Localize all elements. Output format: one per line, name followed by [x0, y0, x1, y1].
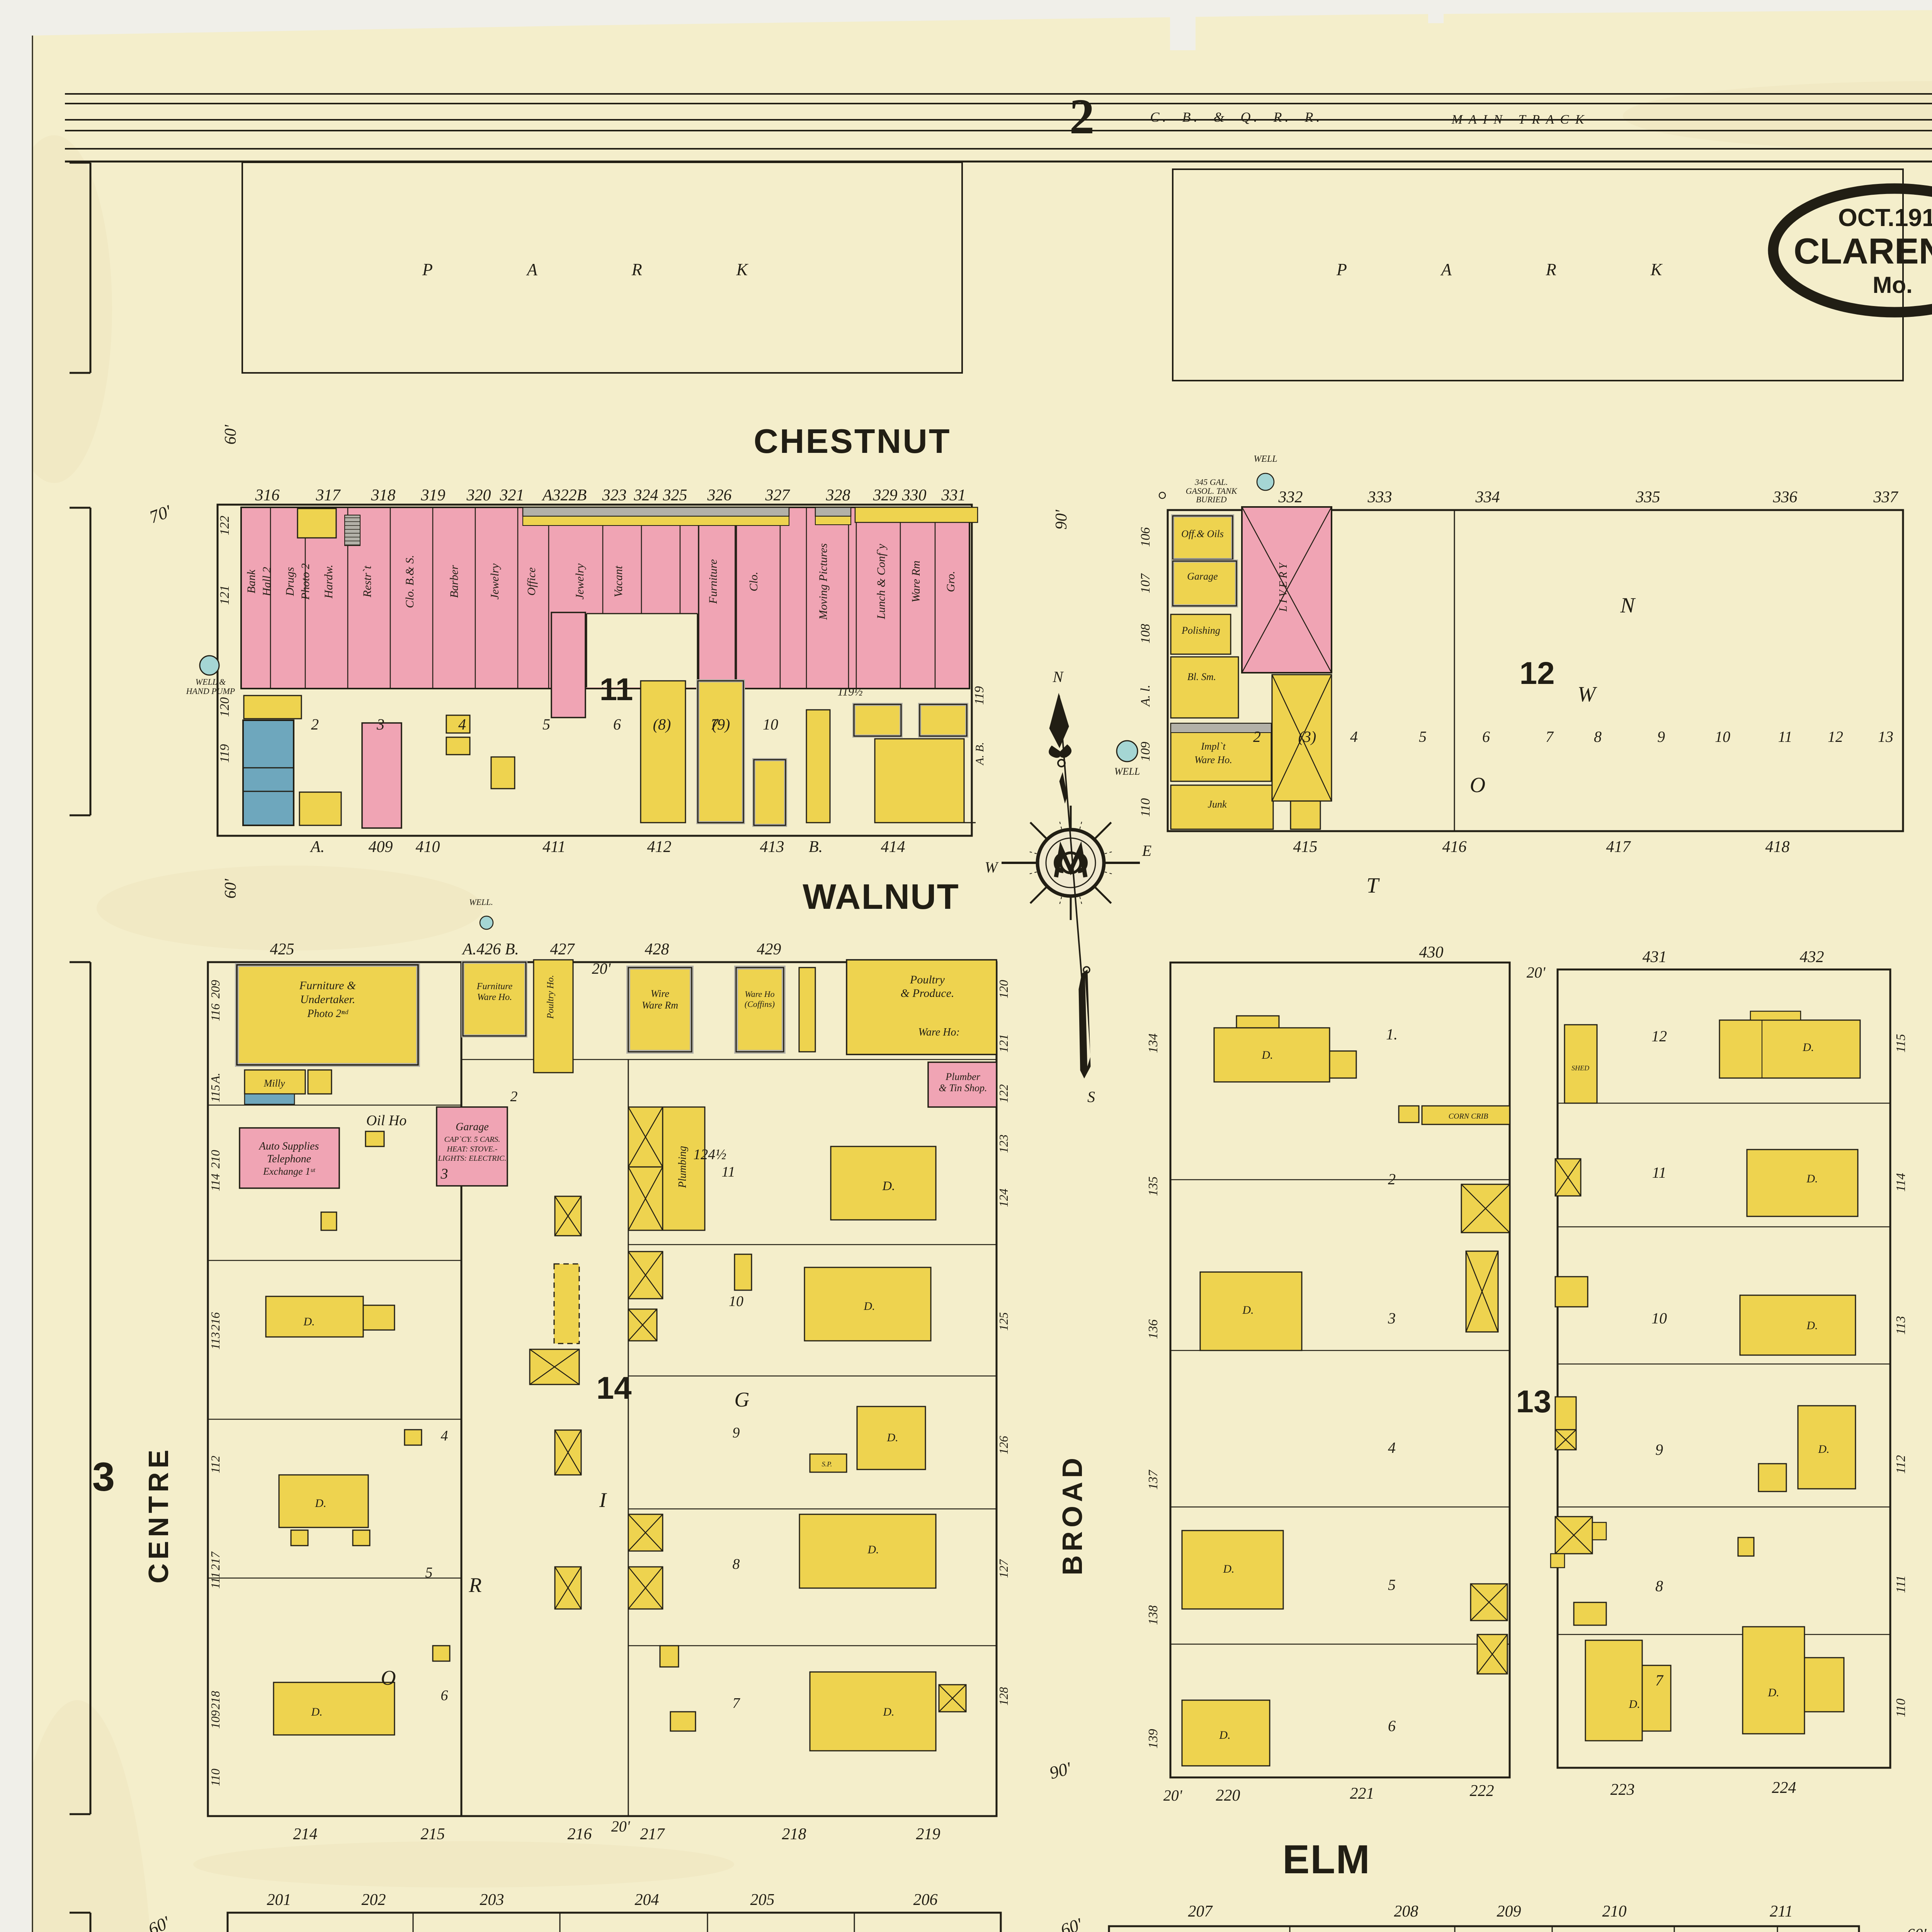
svg-text:A.426 B.: A.426 B. [461, 940, 519, 958]
svg-text:WALNUT: WALNUT [803, 877, 959, 917]
svg-text:335: 335 [1636, 488, 1660, 506]
svg-text:111: 111 [1894, 1575, 1908, 1593]
svg-text:W: W [985, 859, 999, 876]
svg-text:90': 90' [1053, 509, 1070, 529]
svg-text:203: 203 [480, 1891, 504, 1909]
svg-text:316: 316 [255, 486, 280, 504]
svg-text:211: 211 [1770, 1903, 1793, 1920]
svg-text:20': 20' [1163, 1787, 1183, 1804]
svg-text:Bank: Bank [245, 569, 258, 593]
svg-text:2: 2 [1253, 728, 1261, 745]
svg-text:Auto Supplies: Auto Supplies [259, 1140, 319, 1152]
svg-text:217: 217 [208, 1551, 222, 1570]
svg-text:CAP`CY. 5 CARS.: CAP`CY. 5 CARS. [444, 1135, 500, 1144]
svg-text:O: O [1470, 773, 1485, 797]
svg-text:333: 333 [1367, 488, 1392, 506]
svg-text:S: S [1087, 1088, 1095, 1105]
svg-text:D.: D. [882, 1179, 895, 1193]
svg-text:D.: D. [1242, 1304, 1253, 1316]
svg-text:A. B.: A. B. [973, 742, 986, 765]
svg-text:A322B: A322B [541, 486, 587, 504]
svg-text:Furniture &: Furniture & [299, 979, 356, 992]
svg-text:345 GAL.: 345 GAL. [1194, 477, 1228, 487]
svg-text:106: 106 [1138, 527, 1153, 547]
svg-text:209: 209 [208, 980, 222, 998]
svg-text:20': 20' [611, 1818, 631, 1835]
svg-text:8: 8 [733, 1556, 740, 1572]
svg-text:1.: 1. [1386, 1026, 1398, 1043]
svg-text:Vacant: Vacant [612, 566, 625, 597]
svg-text:427: 427 [550, 940, 575, 958]
svg-text:L I V E R Y: L I V E R Y [1277, 562, 1289, 612]
svg-text:215: 215 [421, 1825, 445, 1843]
svg-text:323: 323 [602, 486, 627, 504]
svg-text:LIGHTS: ELECTRIC.: LIGHTS: ELECTRIC. [438, 1154, 507, 1163]
svg-text:11: 11 [1652, 1164, 1666, 1181]
svg-text:6: 6 [1482, 728, 1490, 745]
svg-text:122: 122 [218, 516, 232, 536]
svg-text:114: 114 [208, 1173, 222, 1191]
svg-text:WELL: WELL [1114, 766, 1140, 777]
svg-text:410: 410 [416, 838, 440, 856]
svg-text:412: 412 [647, 838, 672, 856]
svg-text:SHED: SHED [1571, 1064, 1589, 1072]
svg-text:5: 5 [1388, 1576, 1396, 1594]
svg-text:8: 8 [1594, 728, 1602, 745]
svg-text:Ware Ho.: Ware Ho. [477, 992, 512, 1002]
svg-text:3: 3 [440, 1166, 448, 1182]
svg-text:324: 324 [634, 486, 658, 504]
svg-text:Junk: Junk [1207, 799, 1227, 810]
svg-text:113: 113 [1894, 1316, 1908, 1335]
svg-text:Milly: Milly [264, 1078, 285, 1089]
svg-text:7: 7 [1546, 728, 1554, 745]
svg-text:WELL &: WELL & [196, 677, 226, 687]
svg-text:Exchange 1ᵘᵗ: Exchange 1ᵘᵗ [263, 1166, 316, 1177]
svg-text:Poultry: Poultry [910, 973, 945, 986]
svg-text:326: 326 [707, 486, 732, 504]
svg-text:415: 415 [1293, 838, 1318, 856]
svg-text:2: 2 [1070, 89, 1095, 145]
svg-text:Barber: Barber [448, 565, 461, 598]
svg-text:319: 319 [421, 486, 446, 504]
svg-text:M A I N T R A C K: M A I N T R A C K [1451, 112, 1586, 127]
svg-text:219: 219 [916, 1825, 940, 1843]
svg-text:Hardw.: Hardw. [322, 565, 335, 599]
svg-text:425: 425 [270, 940, 294, 958]
svg-text:110: 110 [1894, 1699, 1908, 1717]
svg-text:Clo.: Clo. [747, 572, 760, 592]
svg-text:B.: B. [809, 838, 823, 856]
svg-text:14: 14 [596, 1371, 632, 1406]
svg-text:336: 336 [1773, 488, 1798, 506]
svg-text:8: 8 [1655, 1577, 1663, 1595]
svg-text:OCT.1916.: OCT.1916. [1838, 204, 1932, 231]
svg-text:P A R K: P A R K [422, 260, 763, 279]
svg-text:214: 214 [293, 1825, 318, 1843]
svg-text:10: 10 [729, 1293, 743, 1310]
svg-text:321: 321 [500, 486, 524, 504]
svg-text:224: 224 [1772, 1779, 1796, 1797]
svg-text:HAND PUMP: HAND PUMP [186, 686, 235, 696]
svg-text:20': 20' [1527, 964, 1546, 981]
svg-text:138: 138 [1146, 1605, 1160, 1625]
svg-text:60': 60' [222, 424, 240, 444]
svg-text:Office: Office [525, 567, 538, 595]
svg-text:D.: D. [303, 1315, 315, 1328]
svg-text:430: 430 [1419, 944, 1444, 961]
svg-text:417: 417 [1606, 838, 1631, 856]
svg-text:6: 6 [613, 716, 621, 733]
svg-text:109: 109 [208, 1710, 222, 1729]
svg-text:201: 201 [267, 1891, 291, 1909]
svg-text:328: 328 [826, 486, 850, 504]
svg-text:109: 109 [1138, 742, 1153, 762]
svg-text:4: 4 [458, 716, 466, 733]
svg-text:D.: D. [883, 1706, 894, 1718]
svg-text:208: 208 [1394, 1903, 1418, 1920]
svg-text:Ware Ho:: Ware Ho: [918, 1026, 960, 1038]
svg-text:Telephone: Telephone [267, 1153, 311, 1165]
svg-text:Gro.: Gro. [944, 571, 957, 592]
svg-text:Plumbing: Plumbing [677, 1146, 689, 1189]
svg-text:D.: D. [1806, 1172, 1818, 1185]
svg-text:ELM: ELM [1282, 1837, 1371, 1882]
svg-text:119: 119 [972, 686, 986, 705]
svg-text:C. B. & Q. R. R.: C. B. & Q. R. R. [1150, 109, 1323, 125]
svg-text:5: 5 [543, 716, 550, 733]
svg-text:139: 139 [1146, 1729, 1160, 1749]
svg-text:Impl`t: Impl`t [1201, 741, 1226, 752]
svg-text:218: 218 [782, 1825, 806, 1843]
svg-text:121: 121 [997, 1034, 1010, 1053]
svg-text:128: 128 [997, 1687, 1010, 1706]
svg-text:HEAT: STOVE.-: HEAT: STOVE.- [446, 1145, 497, 1153]
svg-text:119: 119 [218, 744, 232, 763]
svg-text:S.P.: S.P. [822, 1460, 832, 1468]
svg-text:CENTRE: CENTRE [143, 1446, 174, 1583]
svg-text:320: 320 [466, 486, 491, 504]
svg-text:4: 4 [441, 1428, 448, 1444]
svg-text:(8): (8) [653, 716, 671, 733]
svg-text:D.: D. [886, 1431, 898, 1444]
svg-text:O: O [381, 1666, 396, 1689]
svg-text:216: 216 [568, 1825, 592, 1843]
svg-text:D.: D. [863, 1300, 875, 1313]
svg-text:CLARENCE: CLARENCE [1794, 231, 1932, 271]
svg-text:11: 11 [1778, 728, 1792, 745]
svg-text:108: 108 [1138, 624, 1153, 644]
svg-text:318: 318 [371, 486, 396, 504]
svg-text:20': 20' [592, 960, 611, 977]
svg-text:(9): (9) [712, 716, 730, 733]
svg-text:9: 9 [733, 1425, 740, 1441]
svg-text:113: 113 [208, 1332, 222, 1350]
svg-text:T: T [1366, 874, 1380, 898]
svg-text:218: 218 [208, 1691, 222, 1709]
svg-text:5: 5 [425, 1565, 433, 1581]
svg-text:107: 107 [1138, 573, 1153, 594]
svg-text:7: 7 [733, 1695, 741, 1711]
svg-text:202: 202 [362, 1891, 386, 1909]
svg-text:Photo 2: Photo 2 [299, 563, 312, 600]
svg-text:413: 413 [760, 838, 784, 856]
svg-text:111: 111 [208, 1572, 222, 1588]
svg-text:220: 220 [1216, 1787, 1240, 1804]
svg-text:Ware Rm: Ware Rm [642, 1000, 678, 1011]
svg-text:5: 5 [1419, 728, 1427, 745]
svg-text:I: I [599, 1488, 607, 1512]
svg-text:416: 416 [1442, 838, 1467, 856]
svg-text:& Produce.: & Produce. [901, 987, 954, 1000]
svg-text:D.: D. [1628, 1698, 1640, 1711]
svg-text:121: 121 [218, 585, 232, 605]
svg-text:222: 222 [1470, 1782, 1494, 1800]
svg-text:N: N [1620, 594, 1636, 617]
svg-text:327: 327 [765, 486, 791, 504]
svg-text:Ware Ho.: Ware Ho. [1194, 754, 1232, 765]
svg-text:418: 418 [1765, 838, 1790, 856]
svg-text:11: 11 [600, 672, 633, 707]
svg-text:429: 429 [757, 940, 781, 958]
svg-text:331: 331 [941, 486, 966, 504]
svg-text:D.: D. [867, 1543, 879, 1556]
svg-text:4: 4 [1388, 1439, 1396, 1456]
svg-text:116: 116 [208, 1003, 222, 1021]
svg-text:Restr`t: Restr`t [361, 566, 374, 598]
svg-text:BROAD: BROAD [1057, 1454, 1088, 1575]
svg-text:3: 3 [92, 1454, 115, 1500]
svg-text:10: 10 [1715, 728, 1730, 745]
svg-text:Ware Ho: Ware Ho [745, 989, 774, 999]
svg-text:Undertaker.: Undertaker. [300, 993, 355, 1006]
svg-text:337: 337 [1873, 488, 1899, 506]
svg-text:D.: D. [1806, 1319, 1818, 1332]
svg-text:13: 13 [1516, 1384, 1551, 1419]
svg-text:2: 2 [1388, 1170, 1396, 1188]
svg-text:60': 60' [1907, 1926, 1927, 1932]
svg-text:D.: D. [1767, 1686, 1779, 1699]
svg-text:7: 7 [1655, 1672, 1664, 1689]
svg-text:330: 330 [902, 486, 927, 504]
svg-text:414: 414 [881, 838, 905, 856]
svg-text:209: 209 [1497, 1903, 1521, 1920]
svg-text:110: 110 [208, 1769, 222, 1786]
svg-text:332: 332 [1278, 488, 1303, 506]
svg-text:W: W [1578, 682, 1597, 706]
svg-text:Photo 2ⁿᵈ: Photo 2ⁿᵈ [307, 1008, 349, 1020]
svg-text:D.: D. [315, 1497, 326, 1510]
svg-text:334: 334 [1475, 488, 1500, 506]
svg-text:6: 6 [441, 1687, 448, 1704]
svg-text:329: 329 [873, 486, 898, 504]
svg-text:D.: D. [1223, 1563, 1234, 1575]
svg-text:Ware Rm: Ware Rm [910, 561, 922, 603]
svg-text:(3): (3) [1298, 728, 1316, 745]
svg-text:317: 317 [316, 486, 341, 504]
svg-text:Wire: Wire [651, 988, 669, 999]
svg-text:120: 120 [218, 697, 232, 717]
svg-text:9: 9 [1657, 728, 1665, 745]
svg-text:12: 12 [1519, 656, 1554, 691]
svg-text:WELL.: WELL. [469, 897, 493, 907]
svg-text:411: 411 [543, 838, 566, 856]
svg-text:10: 10 [1651, 1310, 1667, 1327]
svg-text:124: 124 [997, 1189, 1010, 1207]
svg-text:6: 6 [1388, 1717, 1396, 1735]
svg-text:Clo. B.& S.: Clo. B.& S. [403, 555, 416, 608]
svg-text:409: 409 [369, 838, 393, 856]
svg-text:Drugs: Drugs [284, 567, 296, 596]
svg-text:115: 115 [1894, 1034, 1908, 1053]
svg-text:(Coffins): (Coffins) [745, 999, 775, 1009]
svg-text:D.: D. [1818, 1443, 1829, 1456]
svg-text:Bl. Sm.: Bl. Sm. [1187, 671, 1216, 682]
svg-text:Garage: Garage [456, 1121, 489, 1133]
svg-text:12: 12 [1651, 1027, 1667, 1045]
svg-text:428: 428 [645, 940, 669, 958]
svg-text:BURIED: BURIED [1196, 495, 1227, 504]
svg-text:136: 136 [1146, 1320, 1160, 1339]
svg-text:112: 112 [208, 1456, 222, 1473]
svg-text:114: 114 [1894, 1173, 1908, 1192]
svg-text:D.: D. [1261, 1049, 1273, 1061]
svg-text:G: G [735, 1388, 750, 1411]
svg-text:115: 115 [208, 1085, 222, 1102]
svg-text:12: 12 [1828, 728, 1843, 745]
svg-text:210: 210 [208, 1150, 222, 1168]
svg-text:3: 3 [376, 716, 384, 733]
svg-text:217: 217 [640, 1825, 665, 1843]
svg-text:10: 10 [763, 716, 778, 733]
svg-text:135: 135 [1146, 1177, 1160, 1196]
svg-text:127: 127 [997, 1559, 1010, 1578]
svg-text:125: 125 [997, 1312, 1010, 1331]
svg-text:CORN CRIB: CORN CRIB [1449, 1112, 1488, 1121]
svg-text:112: 112 [1894, 1455, 1908, 1474]
svg-text:2: 2 [311, 716, 319, 733]
svg-text:2: 2 [510, 1088, 518, 1105]
svg-text:216: 216 [208, 1312, 222, 1331]
svg-text:119½: 119½ [837, 685, 862, 698]
svg-text:Plumber: Plumber [945, 1071, 980, 1082]
svg-text:60': 60' [222, 878, 240, 898]
svg-text:N: N [1053, 668, 1064, 685]
svg-text:E: E [1142, 842, 1151, 859]
svg-text:432: 432 [1800, 948, 1824, 966]
svg-text:3: 3 [1388, 1310, 1396, 1327]
svg-text:206: 206 [913, 1891, 938, 1909]
svg-text:& Tin Shop.: & Tin Shop. [939, 1082, 987, 1094]
svg-text:205: 205 [750, 1891, 775, 1909]
svg-text:WELL: WELL [1253, 454, 1277, 464]
svg-text:Garage: Garage [1187, 571, 1218, 582]
svg-text:Moving Pictures: Moving Pictures [817, 543, 830, 620]
svg-text:R: R [469, 1573, 482, 1597]
svg-text:122: 122 [997, 1084, 1010, 1103]
svg-text:A.: A. [208, 1073, 222, 1084]
svg-text:9: 9 [1655, 1441, 1663, 1458]
svg-text:110: 110 [1138, 798, 1153, 817]
svg-text:Jewelry: Jewelry [573, 563, 586, 600]
svg-text:Poultry Ho.: Poultry Ho. [546, 975, 556, 1019]
svg-text:Off.& Oils: Off.& Oils [1181, 528, 1224, 539]
svg-text:Furniture: Furniture [707, 559, 719, 604]
svg-text:Furniture: Furniture [476, 981, 513, 992]
svg-text:134: 134 [1146, 1034, 1160, 1053]
svg-text:431: 431 [1643, 948, 1667, 966]
svg-text:Hall 2: Hall 2 [260, 567, 273, 597]
svg-text:D.: D. [311, 1706, 322, 1718]
svg-text:120: 120 [997, 980, 1010, 998]
svg-text:221: 221 [1350, 1785, 1374, 1803]
svg-text:D.: D. [1802, 1041, 1814, 1054]
svg-text:Jewelry: Jewelry [488, 563, 501, 600]
svg-text:Polishing: Polishing [1181, 625, 1220, 636]
svg-text:4: 4 [1350, 728, 1358, 745]
svg-text:13: 13 [1878, 728, 1893, 745]
svg-text:Lunch & Conf`y: Lunch & Conf`y [875, 544, 888, 620]
svg-text:210: 210 [1602, 1903, 1627, 1920]
svg-text:CHESTNUT: CHESTNUT [753, 422, 951, 460]
svg-text:A.: A. [310, 838, 325, 856]
svg-text:P A R K: P A R K [1336, 260, 1677, 279]
svg-text:Oil Ho: Oil Ho [366, 1112, 407, 1129]
svg-text:D.: D. [1219, 1729, 1230, 1742]
svg-text:325: 325 [663, 486, 687, 504]
svg-text:137: 137 [1146, 1469, 1160, 1490]
svg-text:126: 126 [997, 1436, 1010, 1454]
svg-text:11: 11 [721, 1164, 735, 1180]
svg-text:207: 207 [1188, 1903, 1213, 1920]
svg-text:223: 223 [1611, 1781, 1635, 1799]
svg-text:204: 204 [635, 1891, 659, 1909]
svg-text:123: 123 [997, 1134, 1010, 1153]
svg-text:124½: 124½ [693, 1146, 726, 1163]
svg-text:A. l.: A. l. [1138, 685, 1153, 707]
svg-text:Mo.: Mo. [1872, 272, 1912, 298]
